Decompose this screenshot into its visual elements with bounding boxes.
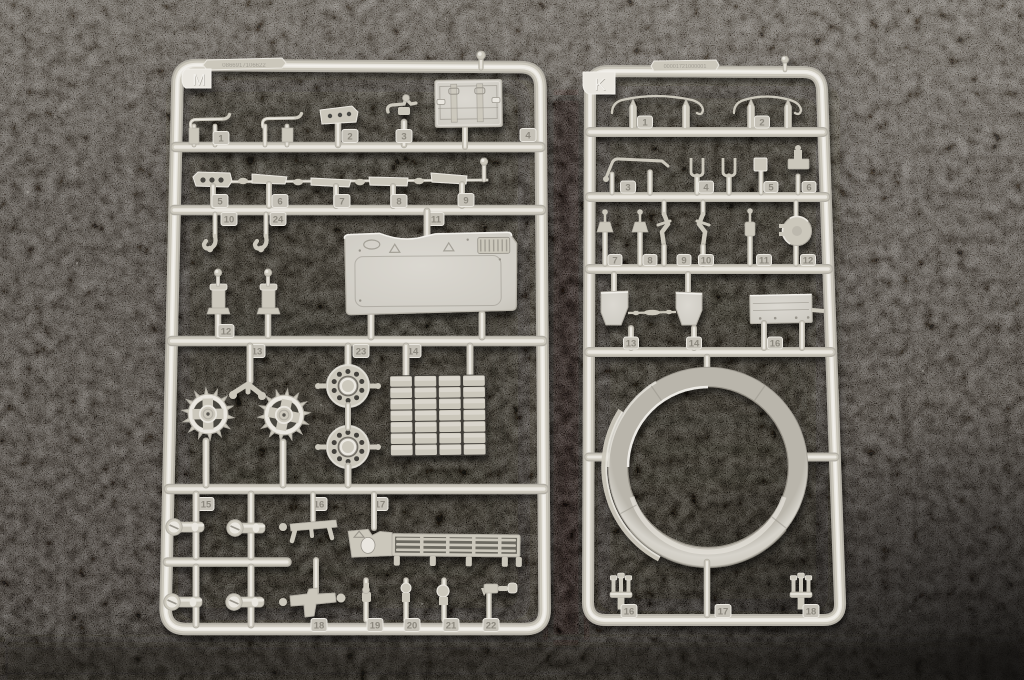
svg-text:4: 4	[525, 130, 531, 141]
svg-text:18: 18	[314, 620, 325, 631]
svg-text:17: 17	[718, 606, 729, 617]
svg-text:13: 13	[626, 338, 637, 349]
svg-text:11: 11	[759, 255, 770, 266]
svg-text:7: 7	[612, 255, 617, 266]
svg-text:6: 6	[806, 182, 811, 193]
svg-text:10: 10	[701, 255, 712, 266]
svg-text:5: 5	[768, 182, 774, 193]
svg-text:16: 16	[770, 338, 781, 349]
svg-text:2: 2	[347, 131, 352, 142]
svg-text:0866917106622: 0866917106622	[222, 63, 266, 69]
svg-text:4: 4	[703, 182, 709, 193]
svg-text:23: 23	[356, 346, 367, 357]
svg-text:12: 12	[221, 326, 232, 337]
svg-text:21: 21	[446, 620, 457, 631]
svg-text:11: 11	[431, 214, 442, 225]
svg-text:3: 3	[401, 131, 406, 142]
svg-text:22: 22	[486, 620, 497, 631]
svg-text:1: 1	[642, 117, 648, 128]
svg-text:18: 18	[806, 606, 817, 617]
svg-text:3: 3	[625, 182, 630, 193]
svg-text:2: 2	[759, 117, 764, 128]
svg-text:24: 24	[273, 214, 284, 225]
svg-text:9: 9	[463, 195, 468, 206]
svg-text:M: M	[192, 72, 205, 89]
svg-text:1: 1	[218, 133, 224, 144]
svg-text:10: 10	[224, 214, 235, 225]
svg-text:16: 16	[624, 606, 635, 617]
svg-text:19: 19	[370, 620, 381, 631]
svg-text:15: 15	[201, 499, 212, 510]
svg-text:7: 7	[339, 196, 344, 207]
svg-text:14: 14	[689, 338, 700, 349]
svg-text:00001721000001: 00001721000001	[664, 64, 707, 70]
svg-text:6: 6	[277, 196, 282, 207]
svg-text:8: 8	[647, 255, 652, 266]
svg-text:5: 5	[217, 196, 223, 207]
svg-text:9: 9	[681, 255, 686, 266]
svg-text:K: K	[594, 75, 606, 94]
svg-text:12: 12	[803, 255, 814, 266]
svg-text:8: 8	[396, 196, 401, 207]
svg-text:20: 20	[407, 620, 418, 631]
